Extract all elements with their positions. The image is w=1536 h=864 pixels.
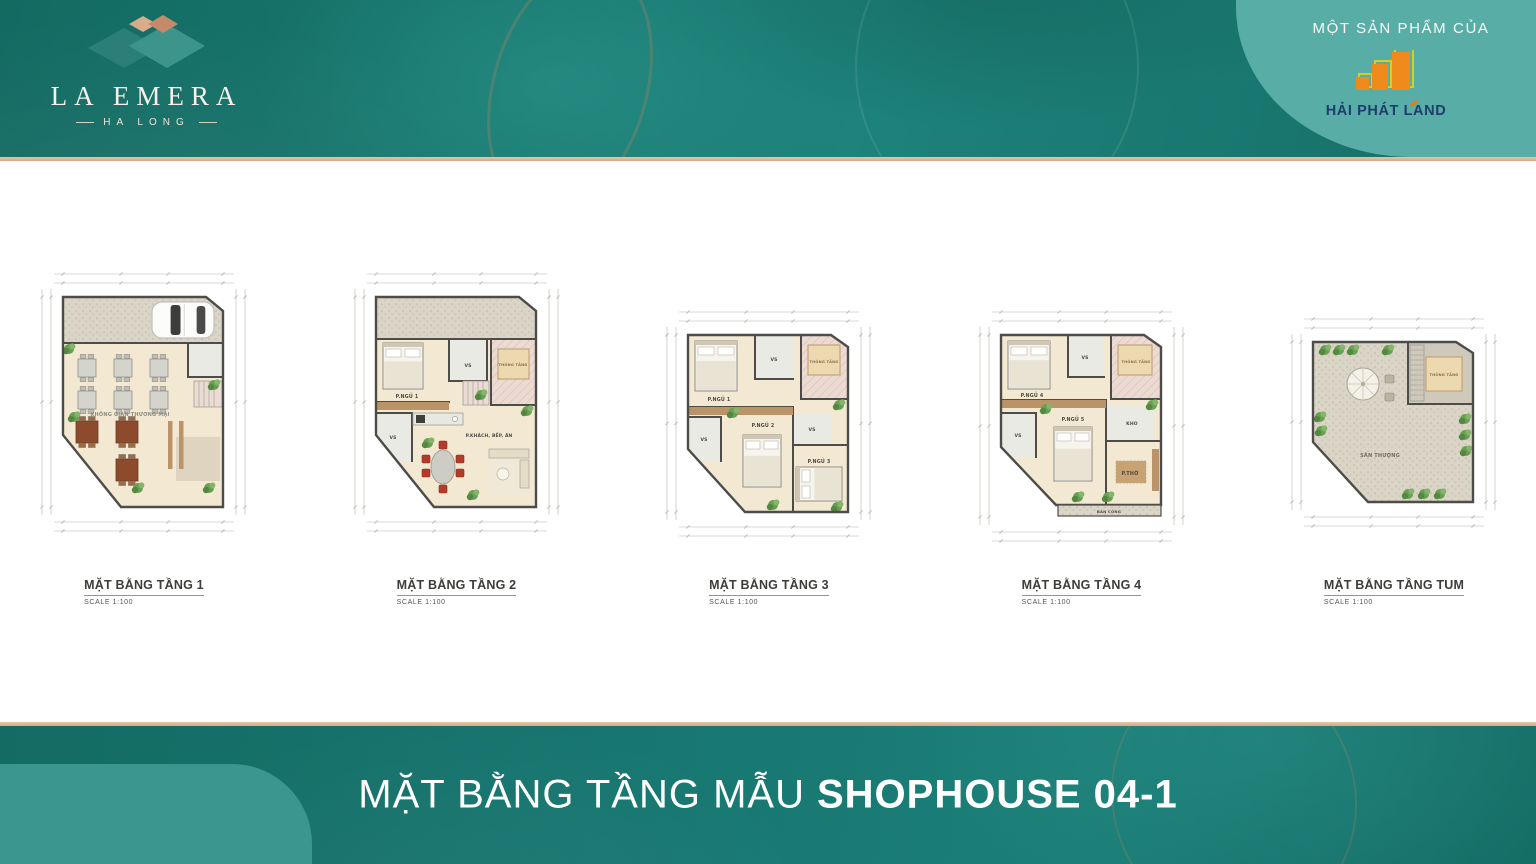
svg-text:VS: VS [1081,355,1088,361]
plan-title: MẶT BẰNG TẦNG 1 [84,578,204,596]
floor-plan-tum-caption: MẶT BẰNG TẦNG TUM SCALE 1:100 [1324,578,1464,606]
svg-text:VS: VS [1014,433,1021,439]
floor-plan-tum-drawing: SÂN THƯỢNGTHÔNG TẦNG [1268,267,1518,567]
svg-text:VS: VS [700,437,707,443]
brand-location: HA LONG [34,117,259,128]
developer-logo: HẢI PHÁT LAND [1236,50,1536,120]
floor-plan-card-1: KHÔNG GIAN THƯƠNG MẠI MẶT BẰNG TẦNG 1 SC… [18,267,270,609]
page: LA EMERA HA LONG MỘT SẢN PHẨM CỦA H [0,0,1536,864]
svg-text:THÔNG TẦNG: THÔNG TẦNG [1430,372,1459,377]
marble-streak [855,0,1139,157]
floor-plan-4-drawing: P.NGỦ 4VSTHÔNG TẦNGVSP.NGỦ 5KHOP.THỜBAN … [956,267,1206,567]
floor-plan-1-drawing: KHÔNG GIAN THƯƠNG MẠI [18,267,268,567]
svg-text:KHÔNG GIAN THƯƠNG MẠI: KHÔNG GIAN THƯƠNG MẠI [90,411,169,418]
brand-diamonds-icon [79,12,214,72]
svg-text:VS: VS [464,363,471,369]
svg-text:VS: VS [770,357,777,363]
floor-plan-card-tum: SÂN THƯỢNGTHÔNG TẦNG MẶT BẰNG TẦNG TUM S… [1268,267,1520,609]
dash-line [76,122,94,123]
plan-title: MẶT BẰNG TẦNG 3 [709,578,829,596]
svg-text:P.THỜ: P.THỜ [1121,470,1139,477]
floor-plan-card-4: P.NGỦ 4VSTHÔNG TẦNGVSP.NGỦ 5KHOP.THỜBAN … [956,267,1208,609]
svg-text:KHO: KHO [1126,421,1138,427]
svg-text:THÔNG TẦNG: THÔNG TẦNG [498,362,527,367]
brand-location-label: HA LONG [103,117,189,128]
floor-plan-2-drawing: P.NGỦ 1VSTHÔNG TẦNGVSP.KHÁCH, BẾP, ĂN [331,267,581,567]
developer-name: HẢI PHÁT LAND [1326,103,1447,119]
plan-scale: SCALE 1:100 [84,599,204,606]
plan-title: MẶT BẰNG TẦNG TUM [1324,578,1464,596]
brand-logo: LA EMERA HA LONG [34,12,259,128]
floor-plan-4-caption: MẶT BẰNG TẦNG 4 SCALE 1:100 [1022,578,1142,606]
floor-plan-card-2: P.NGỦ 1VSTHÔNG TẦNGVSP.KHÁCH, BẾP, ĂN MẶ… [331,267,583,609]
page-title: MẶT BẰNG TẦNG MẪUSHOPHOUSE 04-1 [0,773,1536,818]
header-band: LA EMERA HA LONG MỘT SẢN PHẨM CỦA H [0,0,1536,157]
marble-streak [460,0,681,157]
svg-text:THÔNG TẦNG: THÔNG TẦNG [1121,359,1150,364]
plan-scale: SCALE 1:100 [1324,599,1464,606]
floor-plan-2-caption: MẶT BẰNG TẦNG 2 SCALE 1:100 [397,578,517,606]
page-title-bold: SHOPHOUSE 04-1 [817,773,1178,817]
plan-scale: SCALE 1:100 [709,599,829,606]
svg-text:SÂN THƯỢNG: SÂN THƯỢNG [1360,452,1400,459]
page-title-regular: MẶT BẰNG TẦNG MẪU [358,773,805,817]
developer-blocks-icon [1356,50,1416,94]
svg-text:VS: VS [389,435,396,441]
floor-plan-3-caption: MẶT BẰNG TẦNG 3 SCALE 1:100 [709,578,829,606]
footer-band: MẶT BẰNG TẦNG MẪUSHOPHOUSE 04-1 [0,726,1536,864]
dash-line [199,122,217,123]
developer-name-text: HẢI PHÁT LAND [1326,103,1447,119]
floor-plan-3-drawing: P.NGỦ 1VSTHÔNG TẦNGVSP.NGỦ 2VSP.NGỦ 3 [643,267,893,567]
product-of-label: MỘT SẢN PHẨM CỦA [1266,20,1536,37]
header-corner-shape: MỘT SẢN PHẨM CỦA HẢI PHÁT LAND [1236,0,1536,157]
svg-text:VS: VS [808,427,815,433]
plans-row: KHÔNG GIAN THƯƠNG MẠI MẶT BẰNG TẦNG 1 SC… [0,161,1536,609]
floor-plan-1-caption: MẶT BẰNG TẦNG 1 SCALE 1:100 [84,578,204,606]
floor-plan-card-3: P.NGỦ 1VSTHÔNG TẦNGVSP.NGỦ 2VSP.NGỦ 3 MẶ… [643,267,895,609]
content-area: KHÔNG GIAN THƯƠNG MẠI MẶT BẰNG TẦNG 1 SC… [0,161,1536,722]
svg-text:THÔNG TẦNG: THÔNG TẦNG [810,359,839,364]
plan-title: MẶT BẰNG TẦNG 4 [1022,578,1142,596]
brand-name: LA EMERA [34,81,259,112]
plan-scale: SCALE 1:100 [397,599,517,606]
plan-scale: SCALE 1:100 [1022,599,1142,606]
plan-title: MẶT BẰNG TẦNG 2 [397,578,517,596]
svg-text:BAN CÔNG: BAN CÔNG [1096,509,1120,514]
